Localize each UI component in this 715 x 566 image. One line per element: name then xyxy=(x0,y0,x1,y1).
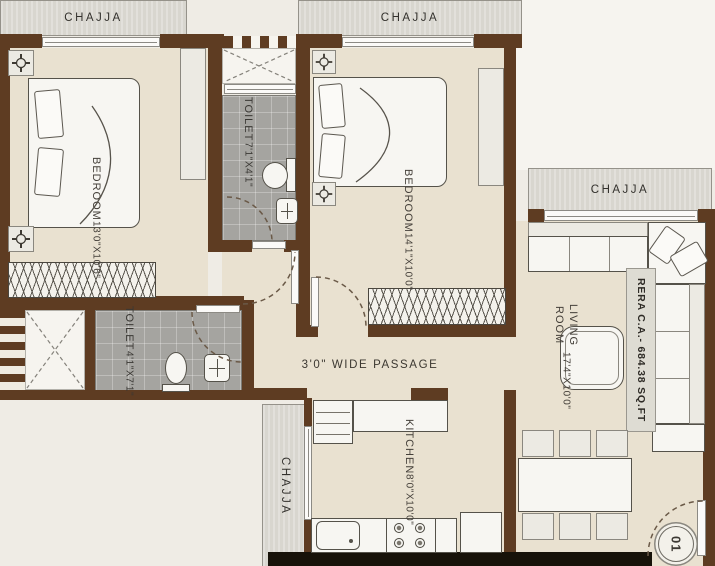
bed2-blanket-fold xyxy=(356,88,390,182)
plan-overlay xyxy=(0,0,715,566)
floor-plan: CHAJJA CHAJJA CHAJJA CHAJJA xyxy=(0,0,715,566)
unit-number: 01 xyxy=(669,536,684,552)
shaft-cross-top xyxy=(224,50,294,82)
shaft-cross-left xyxy=(27,312,83,388)
unit-number-badge: 01 xyxy=(658,526,694,562)
door-arc-bedroom1 xyxy=(243,252,295,304)
door-arc-bedroom2 xyxy=(316,277,366,327)
bed1-blanket-fold xyxy=(80,106,111,224)
door-arc-toilet1 xyxy=(227,197,272,242)
door-arc-toilet2 xyxy=(192,312,242,362)
